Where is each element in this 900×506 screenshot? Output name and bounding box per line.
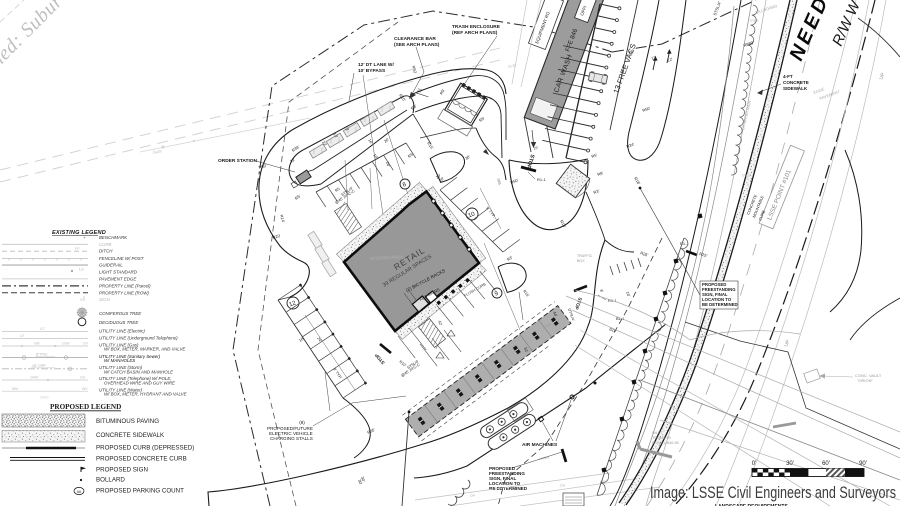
- svg-text:LS: LS: [79, 268, 84, 272]
- svg-text:GV: GV: [83, 342, 89, 346]
- svg-text:30': 30': [786, 461, 794, 467]
- svg-text:LIGHT STANDARD: LIGHT STANDARD: [99, 270, 138, 275]
- svg-text:x: x: [32, 257, 34, 261]
- svg-text:TREE: TREE: [749, 19, 759, 23]
- svg-text:CONCRETE SIDEWALK: CONCRETE SIDEWALK: [96, 432, 165, 439]
- svg-text:DECIDUOUS TREE: DECIDUOUS TREE: [99, 320, 138, 325]
- svg-text:GLW: GLW: [62, 342, 70, 346]
- svg-text:CLEARANCE BAR: CLEARANCE BAR: [394, 36, 436, 42]
- svg-text:Image: LSSE Civil Engineers an: Image: LSSE Civil Engineers and Surveyor…: [650, 484, 896, 502]
- svg-text:WM: WM: [12, 387, 18, 391]
- svg-text:CURB: CURB: [99, 242, 112, 247]
- svg-text:12' DT LANE W/: 12' DT LANE W/: [358, 62, 394, 68]
- svg-text:0': 0': [752, 461, 756, 467]
- svg-text:W/ BOX, METER, MARKER, AND VAL: W/ BOX, METER, MARKER, AND VALVE: [104, 347, 185, 352]
- svg-text:AIR MACHINES: AIR MACHINES: [522, 442, 558, 448]
- svg-text:OH: OH: [560, 483, 566, 488]
- svg-text:UT: UT: [20, 334, 25, 338]
- svg-text:CONIFEROUS TREE: CONIFEROUS TREE: [99, 311, 141, 316]
- svg-text:SIGN: SIGN: [99, 297, 111, 302]
- svg-text:OH: OH: [80, 376, 86, 380]
- svg-text:INLET: INLET: [652, 431, 663, 435]
- svg-text:OVERHEAD WIRE AND GUY WIRE: OVERHEAD WIRE AND GUY WIRE: [104, 380, 175, 385]
- svg-text:BENCHMARK: BENCHMARK: [99, 235, 128, 240]
- svg-text:GM: GM: [34, 342, 40, 346]
- svg-text:CONCRETE: CONCRETE: [783, 80, 809, 85]
- svg-text:OH: OH: [470, 493, 476, 498]
- svg-text:BOLLARD: BOLLARD: [96, 477, 125, 484]
- svg-text:FENCELINE W/ POST: FENCELINE W/ POST: [99, 256, 144, 261]
- svg-text:ORDER STATION: ORDER STATION: [218, 158, 258, 164]
- svg-text:4-FT: 4-FT: [783, 74, 793, 79]
- svg-text:x: x: [80, 257, 82, 261]
- svg-text:(REF ARCH PLANS): (REF ARCH PLANS): [452, 30, 498, 36]
- svg-text:8" PVC: 8" PVC: [36, 353, 48, 357]
- svg-text:(SEE ARCH PLANS): (SEE ARCH PLANS): [394, 42, 440, 48]
- svg-text:PAVEMENT EDGE: PAVEMENT EDGE: [99, 276, 136, 281]
- svg-text:PROPERTY LINE (ROW): PROPERTY LINE (ROW): [99, 290, 149, 295]
- svg-text:+: +: [83, 236, 86, 242]
- svg-text:DITCH: DITCH: [99, 249, 113, 254]
- svg-text:TRASH ENCLOSURE: TRASH ENCLOSURE: [452, 24, 501, 30]
- svg-text:PROPOSED SIGN: PROPOSED SIGN: [96, 467, 148, 474]
- svg-text:##: ##: [77, 490, 81, 494]
- svg-text:CHARGING STALLS: CHARGING STALLS: [270, 436, 313, 441]
- svg-text:x: x: [56, 257, 58, 261]
- svg-text:10' BYPASS: 10' BYPASS: [358, 68, 386, 74]
- svg-text:UT: UT: [40, 327, 45, 331]
- svg-text:BE DETERMINED: BE DETERMINED: [702, 302, 738, 307]
- svg-text:OHW: OHW: [30, 376, 39, 380]
- svg-text:GWO: GWO: [40, 396, 49, 400]
- svg-text:GUIDERAIL: GUIDERAIL: [99, 263, 123, 268]
- svg-text:EXISTING LEGEND: EXISTING LEGEND: [52, 230, 106, 236]
- svg-text:60': 60': [822, 461, 830, 467]
- svg-text:PROPERTY LINE (Parcel): PROPERTY LINE (Parcel): [99, 283, 151, 288]
- svg-text:90': 90': [859, 461, 867, 467]
- svg-text:W/ MANHOLES: W/ MANHOLES: [104, 358, 135, 363]
- svg-text:BOX: BOX: [577, 259, 585, 263]
- svg-text:PROPOSED CONCRETE CURB: PROPOSED CONCRETE CURB: [96, 456, 187, 463]
- svg-text:R1-1: R1-1: [537, 177, 546, 182]
- svg-text:x: x: [44, 257, 46, 261]
- svg-text:FP: FP: [75, 247, 80, 251]
- svg-text:"ORION": "ORION": [857, 378, 874, 383]
- svg-text:PROPOSED LEGEND: PROPOSED LEGEND: [50, 403, 121, 411]
- svg-text:x: x: [20, 257, 22, 261]
- svg-text:TREE: TREE: [741, 174, 751, 178]
- svg-text:IE (12")=840.96: IE (12")=840.96: [652, 441, 679, 445]
- svg-text:TE=845.69: TE=845.69: [652, 436, 671, 440]
- svg-text:W/ CATCH BASIN AND MANHOLE: W/ CATCH BASIN AND MANHOLE: [104, 369, 173, 374]
- svg-text:x: x: [8, 257, 10, 261]
- svg-text:WV: WV: [82, 387, 88, 391]
- svg-text:15" CPP: 15" CPP: [32, 364, 46, 368]
- svg-text:TRAFFIC: TRAFFIC: [577, 254, 593, 258]
- svg-text:W/ BOX, METER, HYDRANT AND VAL: W/ BOX, METER, HYDRANT AND VALVE: [104, 392, 187, 397]
- svg-text:PROPOSED CURB (DEPRESSED): PROPOSED CURB (DEPRESSED): [96, 445, 194, 452]
- svg-text:UTILITY LINE (Underground Tele: UTILITY LINE (Underground Telephone): [99, 335, 178, 340]
- svg-text:UTILITY LINE (Electric): UTILITY LINE (Electric): [99, 328, 145, 333]
- svg-text:x: x: [68, 257, 70, 261]
- svg-text:BITUMINOUS PAVING: BITUMINOUS PAVING: [96, 418, 159, 425]
- svg-text:(8): (8): [299, 420, 305, 425]
- svg-text:SIDEWALK: SIDEWALK: [783, 86, 808, 91]
- svg-text:PROPOSED PARKING COUNT: PROPOSED PARKING COUNT: [96, 488, 184, 495]
